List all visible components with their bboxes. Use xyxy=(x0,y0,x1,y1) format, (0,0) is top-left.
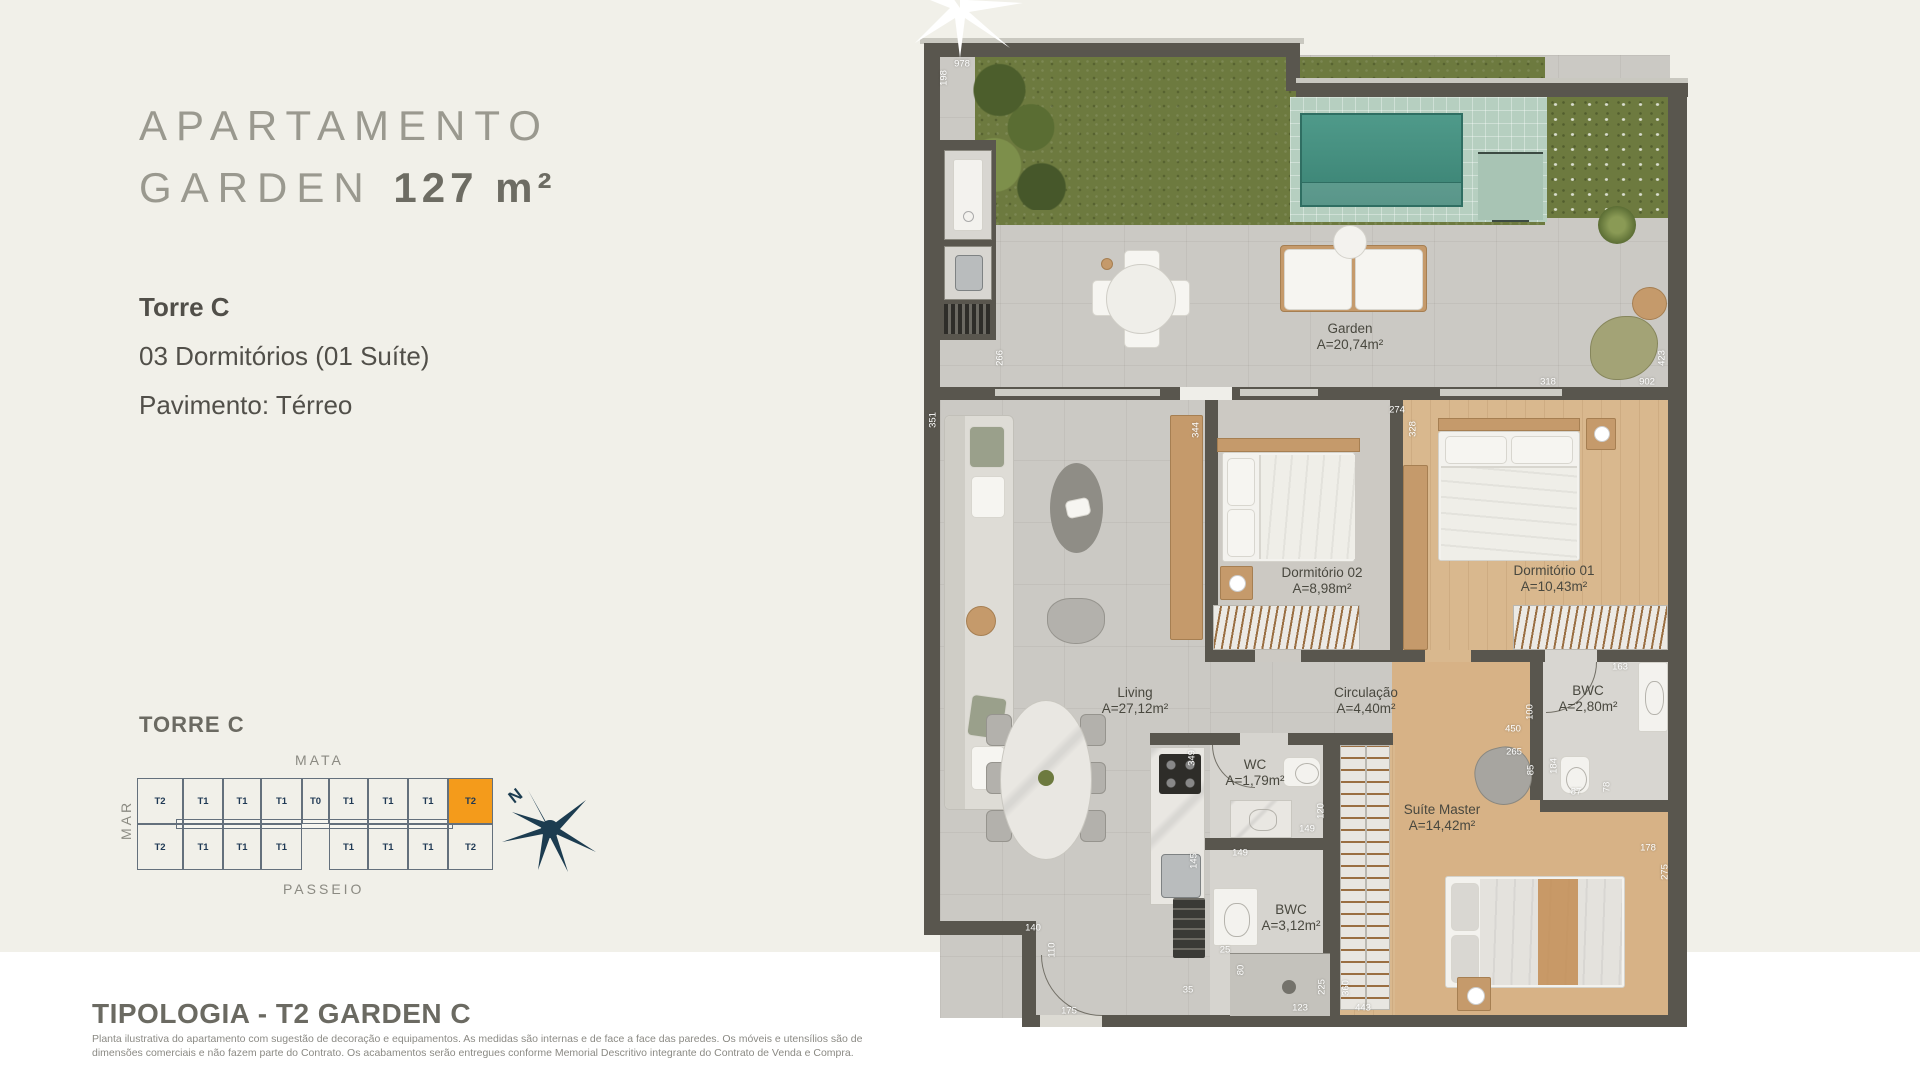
unit-cell-T1: T1 xyxy=(183,778,223,824)
compass-north-letter: N xyxy=(505,785,526,808)
dimension-label: 978 xyxy=(954,59,970,70)
dimension-label: 87 xyxy=(1571,787,1582,798)
dimension-label: 123 xyxy=(1292,1003,1308,1014)
dimension-label: 225 xyxy=(1317,979,1328,995)
entry-door-opening xyxy=(1040,1015,1102,1027)
unit-cell-T1: T1 xyxy=(223,778,261,824)
dorm1-headboard xyxy=(1438,418,1580,431)
unit-cell-T1: T1 xyxy=(183,824,223,870)
dimension-label: 266 xyxy=(995,350,1006,366)
unit-cell-T1: T1 xyxy=(223,824,261,870)
title-line2-light: GARDEN xyxy=(139,164,393,211)
room-label-garden: GardenA=20,74m² xyxy=(1317,321,1383,353)
dimension-label: 149 xyxy=(1299,824,1315,835)
bwc1-counter xyxy=(1638,662,1668,732)
dimension-label: 100 xyxy=(1525,704,1536,720)
dorm2-closet xyxy=(1213,605,1360,650)
water-heater-closet xyxy=(944,150,992,240)
living-coffee-table xyxy=(1050,463,1103,553)
wall-bwc1-bottom xyxy=(1540,800,1687,812)
dorm1-bed xyxy=(1438,431,1580,561)
dimension-label: 349 xyxy=(1187,750,1198,766)
wall-wc-bwc2 xyxy=(1205,838,1340,850)
tower-name: Torre C xyxy=(139,292,230,322)
room-label-wc: WCA=1,79m² xyxy=(1226,757,1285,789)
unit-cell-T1: T1 xyxy=(261,824,302,870)
room-label-dorm2: Dormitório 02A=8,98m² xyxy=(1281,565,1362,597)
palm-plant xyxy=(1598,206,1636,244)
wc-door-opening xyxy=(1240,733,1288,745)
disclaimer-text: Planta ilustrativa do apartamento com su… xyxy=(92,1033,862,1060)
dorm2-wardrobe xyxy=(1170,415,1203,640)
tower-map-title: TORRE C xyxy=(139,712,245,738)
pool-ledge xyxy=(1302,182,1461,205)
spec-pavimento: Pavimento: Térreo xyxy=(139,390,352,420)
dimension-label: 110 xyxy=(1047,942,1058,957)
map-label-mar: MAR xyxy=(118,800,134,840)
suite-bed xyxy=(1445,876,1625,988)
dimension-label: 140 xyxy=(1025,923,1041,934)
bwc2-counter xyxy=(1213,888,1258,946)
garden-coffee-table xyxy=(1632,287,1667,320)
dimension-label: 149 xyxy=(1232,848,1248,859)
tower-unit-grid: T2T1T1T1T0T1T1T1T2T2T1T1T1T1T1T1T2 xyxy=(137,778,493,870)
dimension-label: 85 xyxy=(1526,765,1537,776)
unit-cell-T1: T1 xyxy=(408,824,448,870)
dorm2-headboard xyxy=(1217,438,1360,452)
dorm1-wardrobe xyxy=(1403,465,1428,650)
dorm2-nightstand xyxy=(1220,566,1253,600)
dimension-label: 274 xyxy=(1389,405,1405,416)
page-title: APARTAMENTO GARDEN 127 m² xyxy=(139,95,556,219)
wc-toilet xyxy=(1283,757,1321,787)
dimension-label: 78 xyxy=(1602,782,1613,793)
wall-left-lower xyxy=(924,390,940,935)
window xyxy=(1440,389,1562,396)
dimension-label: 423 xyxy=(1657,350,1668,366)
dimension-label: 80 xyxy=(1236,965,1247,976)
dorm2-bed xyxy=(1222,452,1355,562)
unit-cell-T2: T2 xyxy=(448,824,493,870)
window xyxy=(1240,389,1318,396)
disclaimer-line2: dimensões comerciais e não fazem parte d… xyxy=(92,1047,854,1059)
dimension-label: 318 xyxy=(1540,377,1556,388)
brochure-page: APARTAMENTO GARDEN 127 m² Torre C 03 Dor… xyxy=(0,0,1920,1080)
dimension-label: 178 xyxy=(1640,843,1656,854)
room-label-bwc1: BWCA=2,80m² xyxy=(1559,683,1618,715)
window xyxy=(995,389,1160,396)
room-label-circulacao: CirculaçãoA=4,40m² xyxy=(1334,685,1398,717)
unit-cell-T1: T1 xyxy=(408,778,448,824)
unit-cell-T1: T1 xyxy=(368,824,408,870)
wall-right xyxy=(1668,83,1687,1027)
dorm1-nightstand xyxy=(1586,418,1616,450)
unit-cell-T1: T1 xyxy=(368,778,408,824)
title-area: 127 m² xyxy=(393,164,556,211)
dimension-label: 35 xyxy=(1183,985,1194,996)
wall-dorm2-dorm1 xyxy=(1390,400,1403,652)
dimension-label: 265 xyxy=(1506,747,1522,758)
dimension-label: 198 xyxy=(939,70,950,86)
wc-counter xyxy=(1230,800,1292,838)
unit-specs: Torre C 03 Dormitórios (01 Suíte) Pavime… xyxy=(139,283,429,430)
disclaimer-line1: Planta ilustrativa do apartamento com su… xyxy=(92,1033,862,1045)
unit-cell-T2: T2 xyxy=(448,778,493,824)
spec-dormitorios: 03 Dormitórios (01 Suíte) xyxy=(139,341,429,371)
dimension-label: 450 xyxy=(1505,724,1521,735)
utility-sink-closet xyxy=(944,246,992,300)
bwc2-shower xyxy=(1230,953,1330,1016)
living-armchair xyxy=(1047,598,1105,644)
suite-nightstand xyxy=(1457,977,1491,1011)
unit-cell-T1: T1 xyxy=(329,824,368,870)
pool-steps xyxy=(1478,152,1543,220)
living-side-table xyxy=(966,606,996,636)
dorm1-door-opening xyxy=(1425,650,1471,662)
dimension-label: 902 xyxy=(1639,377,1655,388)
room-label-dorm1: Dormitório 01A=10,43m² xyxy=(1513,563,1594,595)
dimension-label: 175 xyxy=(1061,1006,1077,1017)
kitchen-counter xyxy=(1150,747,1205,905)
compass-icon: N xyxy=(500,782,600,877)
garden-dining-set xyxy=(1104,262,1176,334)
wall-entry-step-h xyxy=(924,921,1036,935)
utility-grille xyxy=(944,304,990,334)
room-label-bwc2: BWCA=3,12m² xyxy=(1262,902,1321,934)
dimension-label: 328 xyxy=(1408,421,1419,437)
pool-water xyxy=(1300,113,1463,207)
unit-cell-T0: T0 xyxy=(302,778,329,824)
door-opening xyxy=(1180,387,1232,400)
room-label-suite: Suíte MasterA=14,42m² xyxy=(1404,802,1481,834)
dimension-label: 120 xyxy=(1316,803,1327,819)
room-label-living: LivingA=27,12m² xyxy=(1102,685,1168,717)
dimension-label: 163 xyxy=(1612,662,1628,673)
kitchen-oven-tower xyxy=(1173,898,1205,958)
dimension-label: 360 xyxy=(1341,980,1352,996)
dimension-label: 145 xyxy=(1189,853,1200,869)
title-line1: APARTAMENTO xyxy=(139,102,550,149)
dorm1-closet xyxy=(1513,605,1668,650)
map-label-passeio: PASSEIO xyxy=(283,881,364,897)
unit-cell-T2: T2 xyxy=(137,824,183,870)
dimension-label: 344 xyxy=(1191,422,1202,438)
bwc-door-opening xyxy=(1545,650,1597,662)
dimension-label: 351 xyxy=(928,412,939,428)
dining-set xyxy=(1000,700,1090,858)
decorative-star-icon xyxy=(895,0,1025,58)
wall-top-right xyxy=(1296,83,1688,97)
garden-side-table xyxy=(1333,225,1367,259)
wall-entry-step-v xyxy=(1022,921,1036,1027)
unit-cell-T1: T1 xyxy=(261,778,302,824)
dorm2-door-opening xyxy=(1255,650,1301,662)
suite-closet xyxy=(1340,745,1390,1010)
utility-column xyxy=(936,140,996,340)
wall-bottom xyxy=(1022,1015,1687,1027)
map-label-mata: MATA xyxy=(295,752,344,768)
typology-heading: TIPOLOGIA - T2 GARDEN C xyxy=(92,998,471,1030)
dimension-label: 25 xyxy=(1220,945,1231,956)
dimension-label: 184 xyxy=(1549,758,1560,774)
unit-cell-T1: T1 xyxy=(329,778,368,824)
dimension-label: 275 xyxy=(1660,864,1671,880)
unit-cell-T2: T2 xyxy=(137,778,183,824)
dimension-label: 443 xyxy=(1355,1003,1371,1014)
wall-left-garden xyxy=(924,43,940,390)
garden-grass-right xyxy=(1547,97,1668,218)
